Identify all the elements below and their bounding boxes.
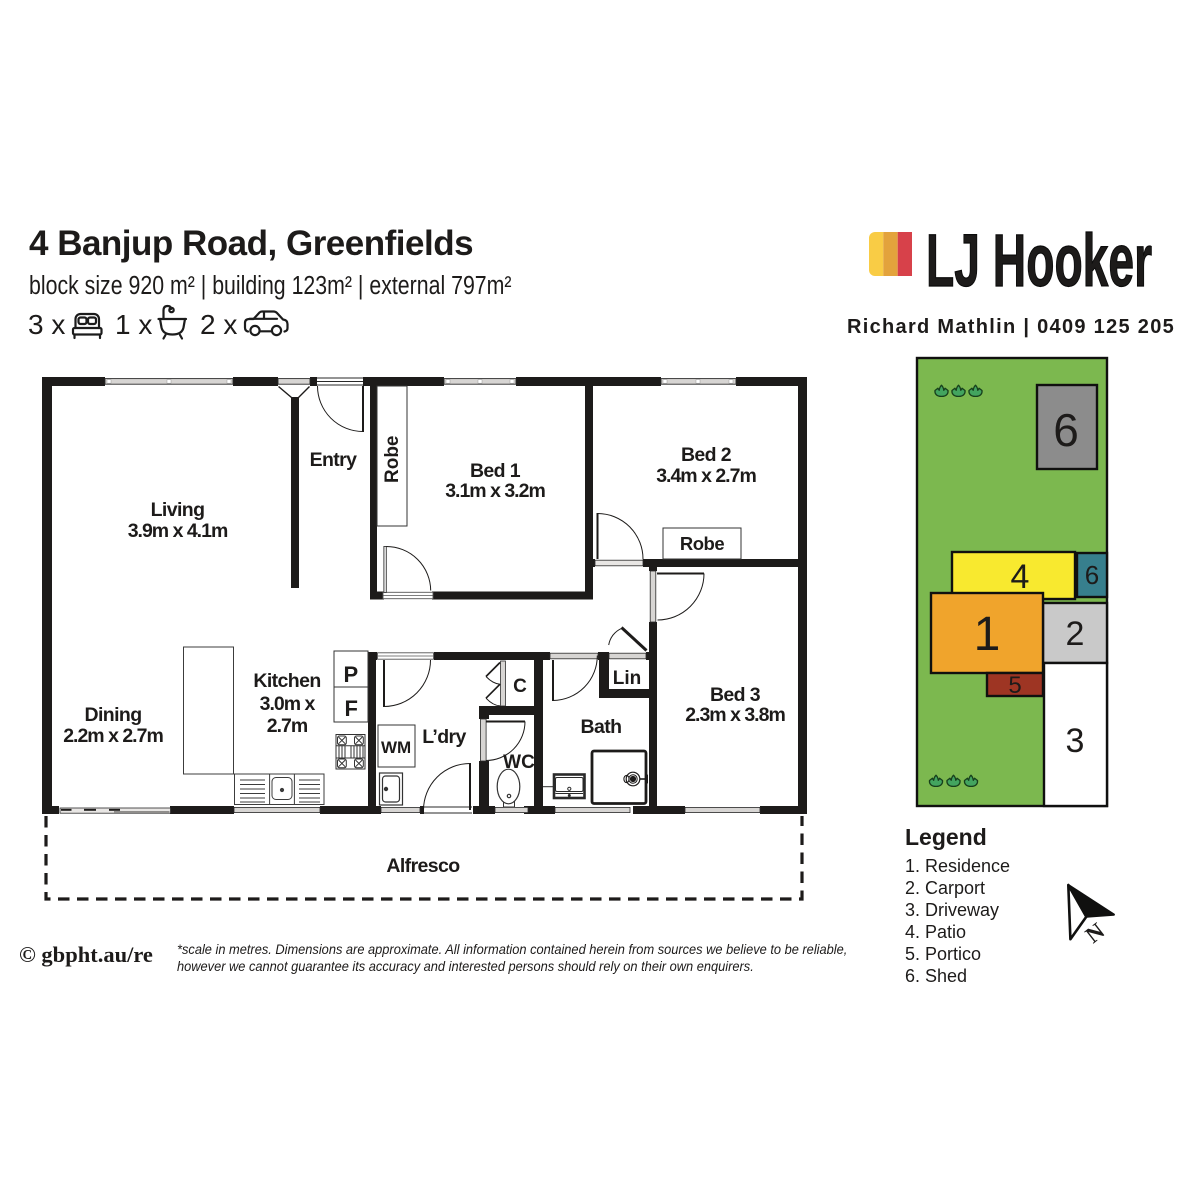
svg-text:2. Carport: 2. Carport: [905, 878, 985, 898]
svg-text:1 x: 1 x: [115, 309, 152, 340]
svg-text:4. Patio: 4. Patio: [905, 922, 966, 942]
svg-text:Bed 2: Bed 2: [681, 444, 732, 466]
svg-text:Bed 3: Bed 3: [710, 684, 761, 706]
svg-text:however we cannot guarantee it: however we cannot guarantee its accuracy…: [177, 959, 754, 974]
svg-text:3.0m x: 3.0m x: [260, 693, 316, 715]
svg-text:WM: WM: [381, 738, 411, 757]
svg-text:Robe: Robe: [680, 533, 724, 554]
svg-text:Alfresco: Alfresco: [386, 855, 460, 877]
svg-text:3.4m x 2.7m: 3.4m x 2.7m: [656, 465, 756, 487]
svg-text:L’dry: L’dry: [422, 726, 466, 748]
svg-text:6: 6: [1085, 560, 1099, 590]
svg-text:N: N: [1081, 918, 1110, 948]
svg-text:3. Driveway: 3. Driveway: [905, 900, 999, 920]
svg-text:Legend: Legend: [905, 824, 987, 850]
svg-text:2: 2: [1066, 615, 1085, 653]
svg-text:6: 6: [1053, 404, 1079, 456]
svg-text:4 Banjup Road, Greenfields: 4 Banjup Road, Greenfields: [29, 224, 473, 263]
svg-text:3.9m x 4.1m: 3.9m x 4.1m: [128, 520, 228, 542]
svg-text:5: 5: [1008, 672, 1021, 699]
svg-text:Bath: Bath: [581, 716, 622, 738]
svg-text:LJ Hooker: LJ Hooker: [926, 220, 1152, 303]
svg-text:Kitchen: Kitchen: [253, 670, 320, 692]
svg-text:2 x: 2 x: [200, 309, 237, 340]
svg-text:2.2m x 2.7m: 2.2m x 2.7m: [63, 725, 163, 747]
svg-text:2.3m x 3.8m: 2.3m x 3.8m: [685, 704, 785, 726]
svg-text:Robe: Robe: [382, 436, 403, 484]
svg-text:F: F: [345, 696, 358, 721]
svg-text:Lin: Lin: [613, 668, 642, 689]
svg-text:Richard Mathlin | 0409 125 205: Richard Mathlin | 0409 125 205: [847, 316, 1175, 338]
svg-text:Living: Living: [151, 499, 205, 521]
svg-text:1. Residence: 1. Residence: [905, 856, 1010, 876]
svg-text:block size 920 m² | building 1: block size 920 m² | building 123m² | ext…: [29, 271, 512, 301]
svg-text:Bed 1: Bed 1: [470, 460, 521, 482]
svg-text:3: 3: [1066, 722, 1085, 760]
svg-text:6. Shed: 6. Shed: [905, 966, 967, 986]
svg-text:4: 4: [1011, 558, 1030, 596]
svg-text:1: 1: [974, 608, 1001, 661]
svg-text:Entry: Entry: [310, 449, 358, 471]
svg-text:*scale in metres. Dimensions a: *scale in metres. Dimensions are approxi…: [177, 942, 847, 957]
svg-text:WC: WC: [503, 752, 535, 773]
svg-text:Dining: Dining: [84, 704, 141, 726]
svg-text:3.1m x 3.2m: 3.1m x 3.2m: [445, 480, 545, 502]
svg-text:3 x: 3 x: [28, 309, 65, 340]
svg-text:© gbpht.au/re: © gbpht.au/re: [19, 942, 153, 967]
svg-text:C: C: [513, 676, 527, 697]
svg-text:P: P: [344, 662, 359, 687]
svg-text:2.7m: 2.7m: [267, 715, 308, 737]
svg-text:5. Portico: 5. Portico: [905, 944, 981, 964]
